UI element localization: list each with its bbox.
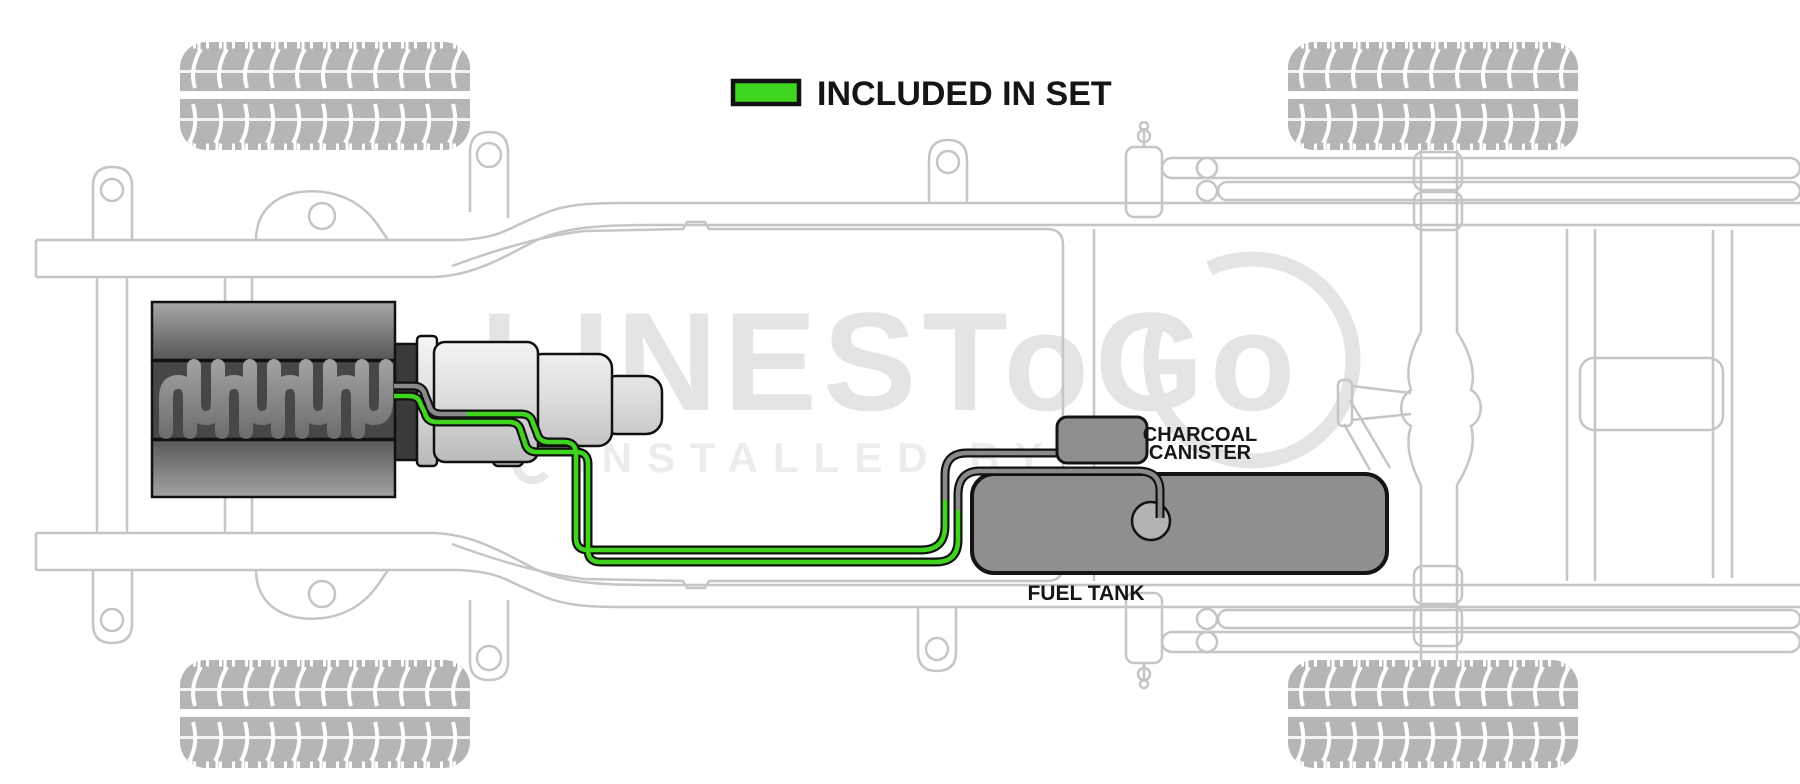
fuel-tank-label: FUEL TANK — [1027, 582, 1144, 605]
charcoal-canister-label-line2: CANISTER — [1149, 442, 1252, 464]
tire-front-left — [180, 42, 470, 150]
fuel-tank-group — [972, 474, 1387, 573]
legend-label: INCLUDED IN SET — [817, 75, 1112, 113]
legend: INCLUDED IN SET — [733, 75, 1112, 113]
tire-rear-right-top — [1288, 42, 1578, 150]
fuel-line-diagram: LINESToGo INSTALLED BY — [0, 0, 1800, 784]
charcoal-canister — [1057, 417, 1147, 463]
diagram-canvas: LINESToGo INSTALLED BY — [0, 0, 1800, 784]
legend-swatch — [733, 81, 799, 104]
engine-valve-cover-top — [152, 302, 395, 360]
tire-rear-right-bottom — [1288, 660, 1578, 768]
engine-valve-cover-bottom — [152, 440, 395, 497]
fuel-tank — [972, 474, 1387, 573]
tire-front-left-bottom — [180, 660, 470, 768]
engine-block — [152, 302, 422, 497]
